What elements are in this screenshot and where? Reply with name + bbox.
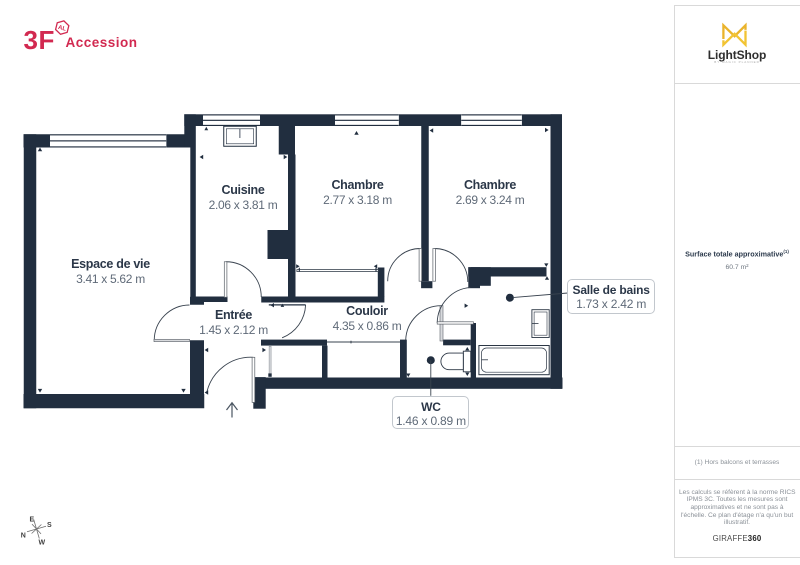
svg-text:S: S <box>47 522 52 529</box>
svg-text:AL: AL <box>57 25 67 33</box>
svg-text:E: E <box>29 517 34 524</box>
svg-text:W: W <box>38 540 45 547</box>
svg-text:N: N <box>21 533 26 540</box>
